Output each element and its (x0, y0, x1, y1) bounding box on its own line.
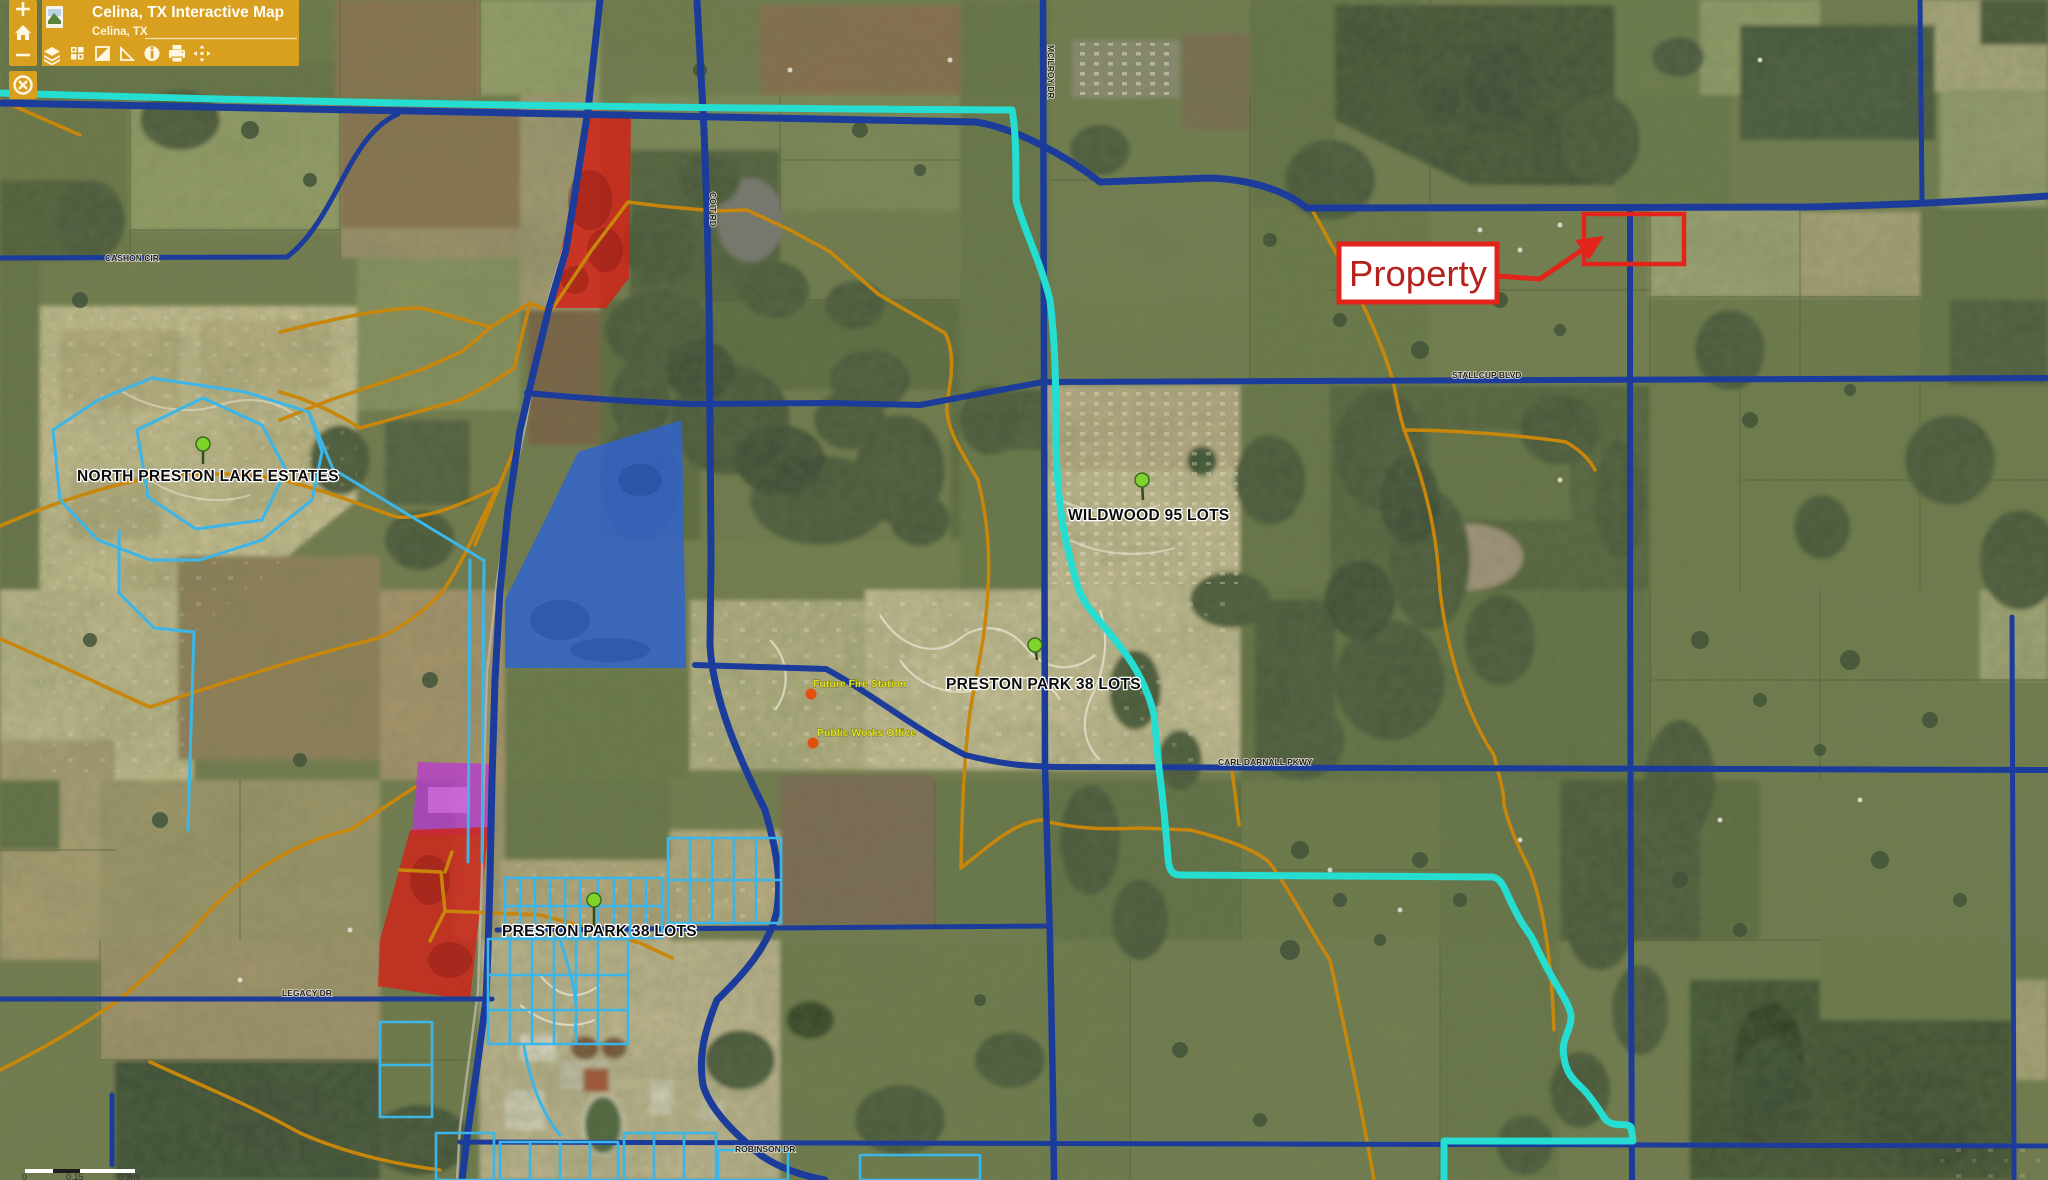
svg-text:CARL DARNALL PKWY: CARL DARNALL PKWY (1218, 757, 1313, 767)
svg-text:Future Fire Station: Future Fire Station (813, 678, 906, 690)
svg-text:PRESTON PARK 38 LOTS: PRESTON PARK 38 LOTS (946, 676, 1141, 693)
svg-text:STALLCUP BLVD: STALLCUP BLVD (1452, 370, 1521, 380)
svg-text:WILDWOOD 95 LOTS: WILDWOOD 95 LOTS (1068, 507, 1230, 524)
svg-text:LEGACY DR: LEGACY DR (282, 988, 332, 998)
svg-text:CASHON CIR: CASHON CIR (105, 253, 159, 263)
svg-text:MCILROY DR: MCILROY DR (1046, 45, 1056, 99)
svg-text:PRESTON PARK 38 LOTS: PRESTON PARK 38 LOTS (502, 923, 697, 940)
svg-text:NORTH PRESTON LAKE ESTATES: NORTH PRESTON LAKE ESTATES (77, 468, 339, 485)
svg-text:0: 0 (22, 1172, 27, 1180)
svg-text:0.15: 0.15 (66, 1172, 84, 1180)
svg-text:Property: Property (1349, 253, 1488, 294)
svg-text:Celina, TX Interactive Map: Celina, TX Interactive Map (92, 4, 284, 21)
svg-text:0.3mi: 0.3mi (118, 1172, 140, 1180)
svg-text:Celina, TX: Celina, TX (92, 26, 148, 38)
svg-text:ROBINSON DR: ROBINSON DR (735, 1144, 795, 1154)
svg-text:COIT RD: COIT RD (708, 192, 718, 227)
svg-text:Public Works Office: Public Works Office (817, 727, 916, 739)
